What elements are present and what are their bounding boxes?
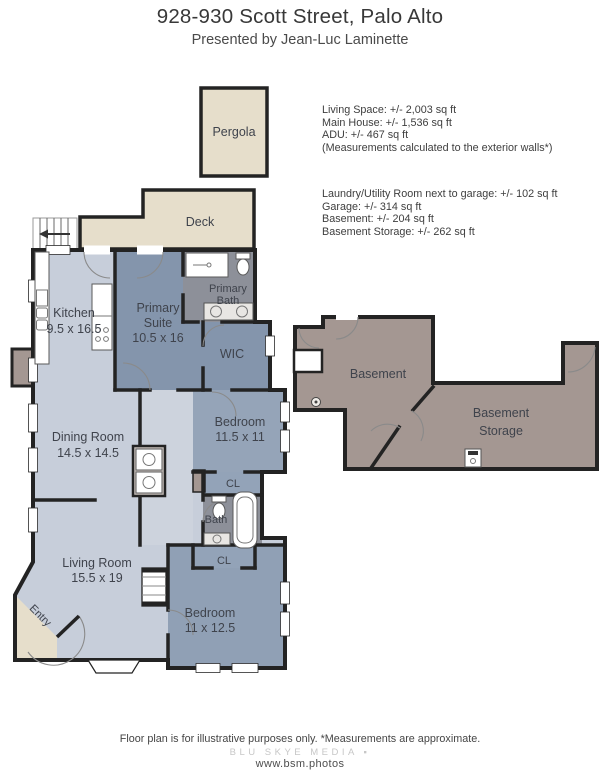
floor-plan-drawing: Pergola Deck — [0, 0, 600, 773]
washer-icon — [136, 449, 162, 470]
wic-label: WIC — [220, 347, 244, 361]
bedroom1-dims: 11.5 x 11 — [215, 430, 265, 444]
basement-plan: Basement Basement Storage — [294, 313, 597, 469]
svg-text:Suite: Suite — [144, 316, 173, 330]
kitchen-label: Kitchen — [53, 306, 95, 320]
door-opening — [137, 246, 163, 255]
main-house: Kitchen 9.5 x 16.5 Primary Suite 10.5 x … — [15, 246, 290, 674]
room-deck: Deck — [33, 190, 254, 250]
door-opening — [336, 313, 358, 320]
basement-footprint — [295, 317, 597, 469]
floor-plan-page: 928-930 Scott Street, Palo Alto Presente… — [0, 0, 600, 773]
svg-text:Bath: Bath — [217, 295, 240, 307]
water-heater-icon — [465, 449, 481, 467]
dining-dims: 14.5 x 14.5 — [57, 446, 119, 460]
laundry-stack — [133, 446, 165, 496]
door-opening — [84, 246, 110, 255]
bedroom2-label: Bedroom — [185, 606, 236, 620]
basement-label: Basement — [350, 367, 407, 381]
watermark-brand: BLU SKYE MEDIA ▪ — [0, 747, 600, 758]
basement-landing — [294, 350, 322, 372]
room-pergola: Pergola — [201, 88, 267, 176]
fireplace — [142, 568, 166, 606]
footer-disclaimer: Floor plan is for illustrative purposes … — [0, 733, 600, 745]
primary-suite-dims: 10.5 x 16 — [132, 331, 183, 345]
dining-label: Dining Room — [52, 430, 124, 444]
primary-suite-label: Primary — [136, 301, 180, 315]
living-label: Living Room — [62, 556, 131, 570]
sump-pump-icon — [312, 398, 321, 407]
closet1-label: CL — [226, 478, 240, 490]
basement-storage-label: Basement — [473, 406, 530, 420]
bath-label: Bath — [205, 514, 228, 526]
deck-label: Deck — [186, 215, 215, 229]
closet2-label: CL — [217, 555, 231, 567]
bedroom2-dims: 11 x 12.5 — [185, 621, 236, 635]
svg-text:Storage: Storage — [479, 424, 523, 438]
pergola-label: Pergola — [212, 125, 255, 139]
watermark-website: www.bsm.photos — [0, 758, 600, 770]
bay-window — [88, 660, 140, 673]
dryer-icon — [136, 472, 162, 493]
bedroom1-label: Bedroom — [215, 415, 266, 429]
kitchen-dims: 9.5 x 16.5 — [47, 322, 102, 336]
living-dims: 15.5 x 19 — [71, 571, 122, 585]
toilet-icon — [236, 253, 250, 275]
primary-bath-label: Primary — [209, 283, 247, 295]
